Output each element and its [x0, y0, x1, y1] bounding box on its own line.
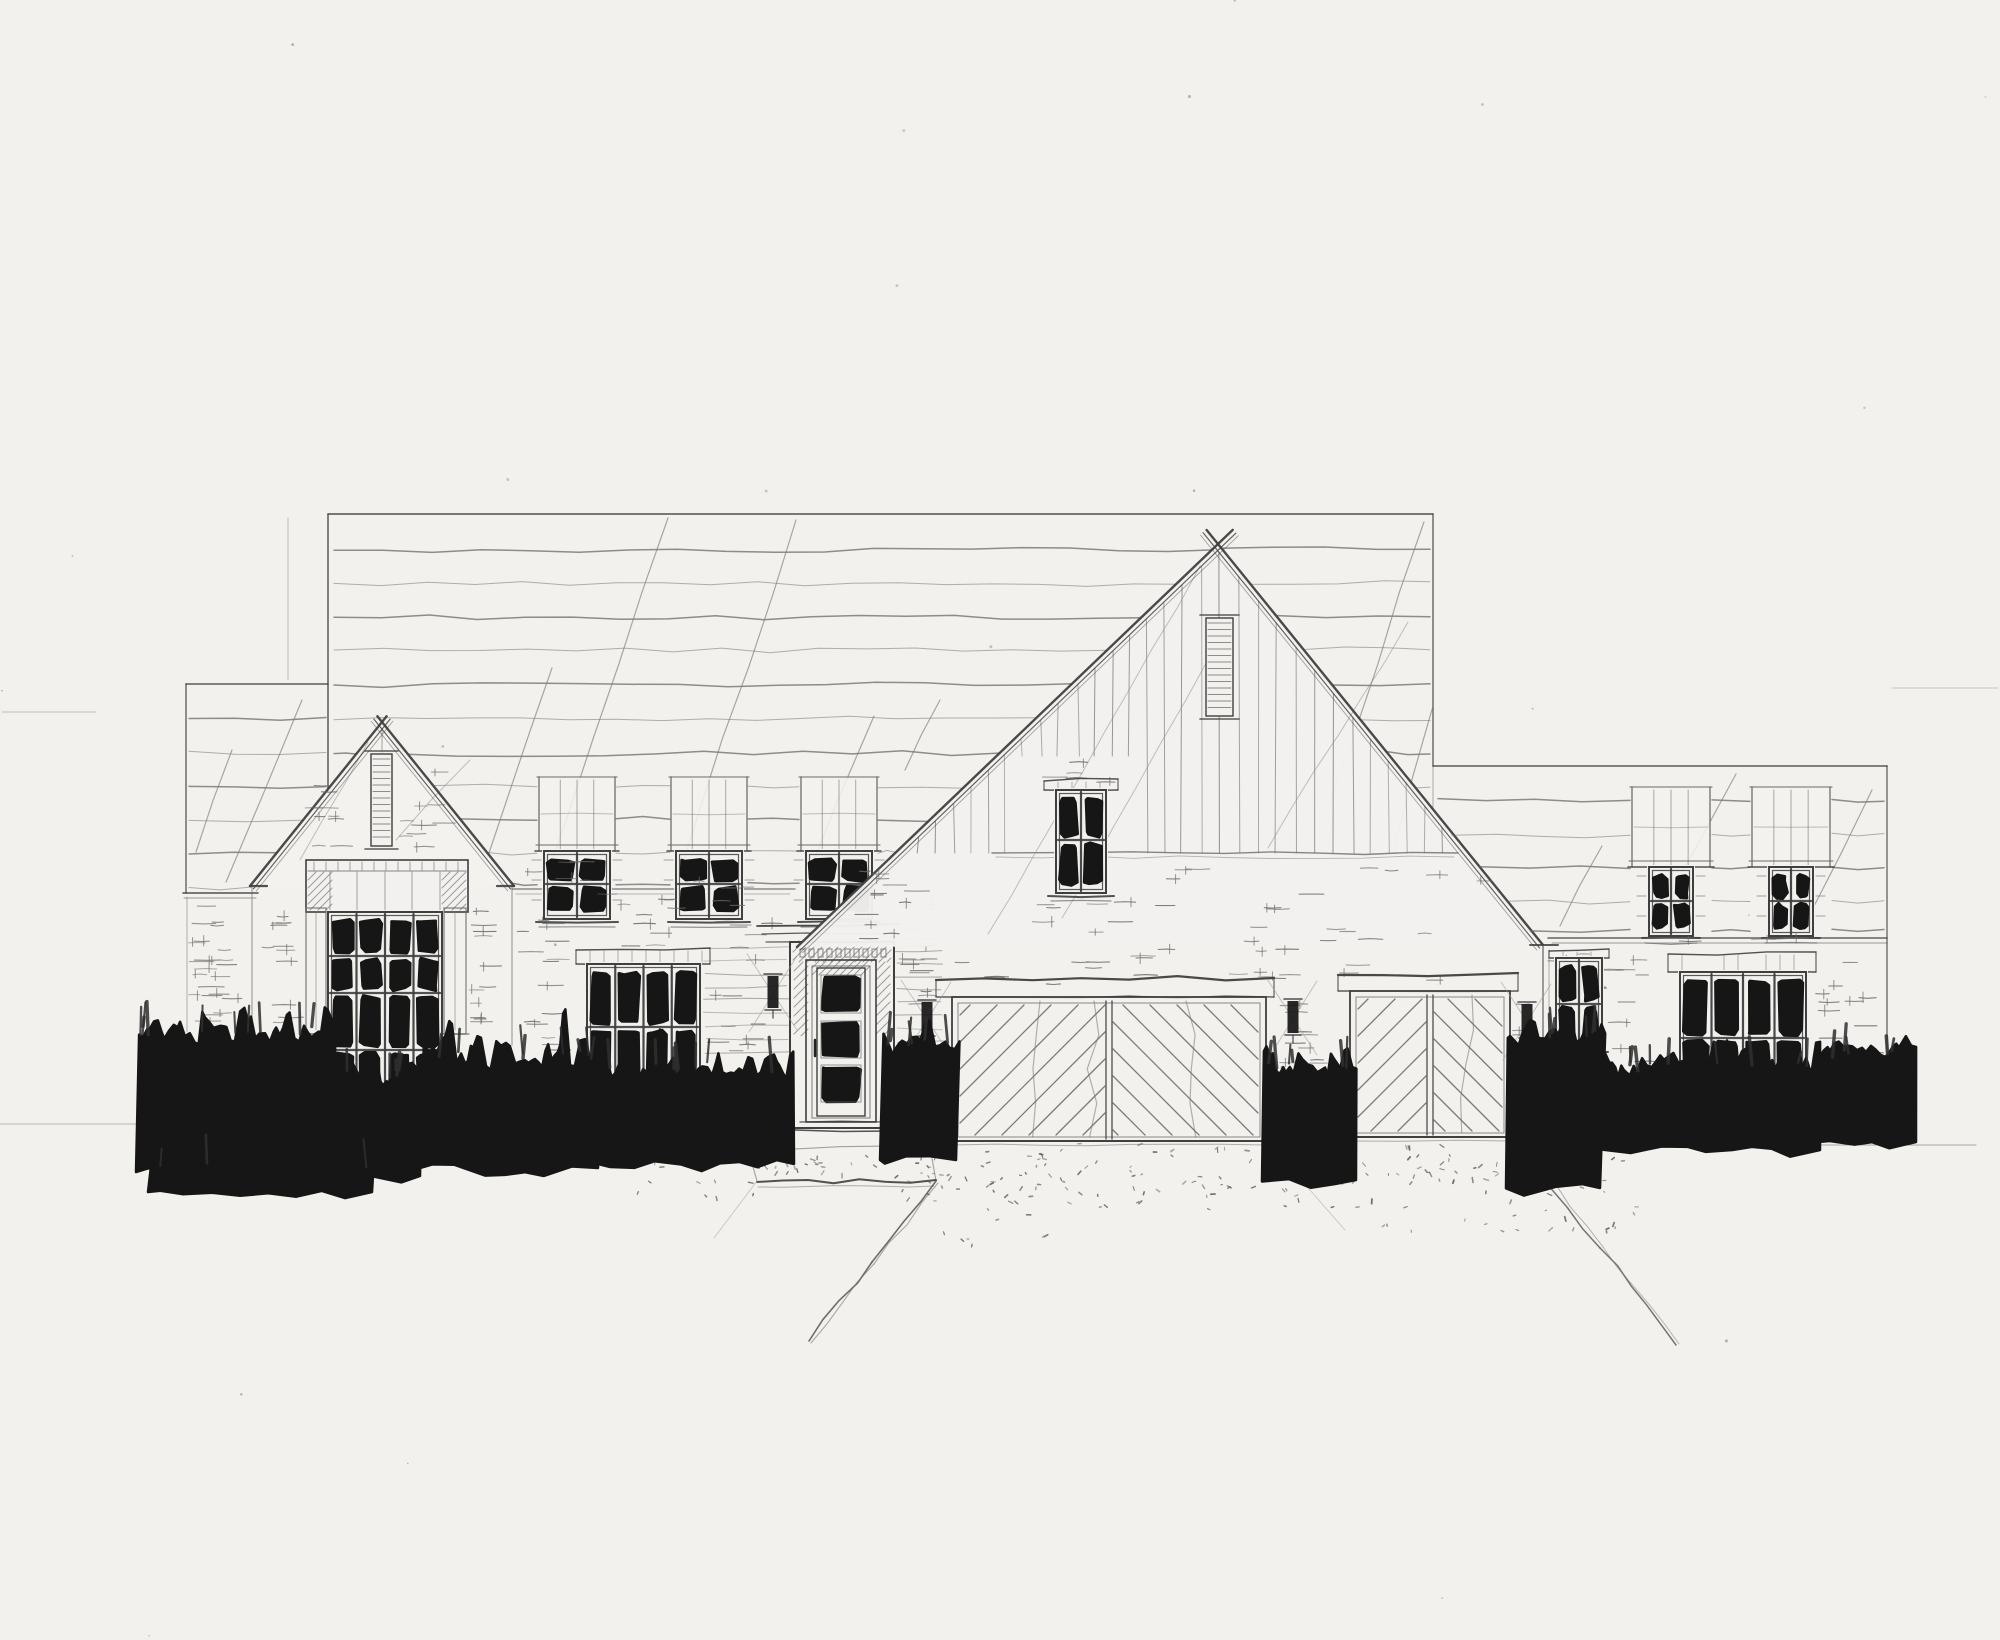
garage-door-right: [1338, 973, 1518, 1141]
front-walkway: [714, 1146, 938, 1343]
house-elevation-sketch: [0, 0, 2000, 1640]
left-wing-wall-courses: [189, 906, 242, 1024]
center-gable-window: [1044, 778, 1118, 901]
driveway-edges: [1281, 1157, 1679, 1345]
right-dormer-1: [1628, 787, 1714, 944]
left-gable-window-header: [306, 860, 468, 912]
upper-dormer-1: [532, 777, 622, 927]
sketch-page: [0, 0, 2000, 1640]
right-dormer-2: [1748, 787, 1834, 943]
center-gable: [797, 530, 1558, 953]
garage-door-left: [936, 976, 1274, 1146]
